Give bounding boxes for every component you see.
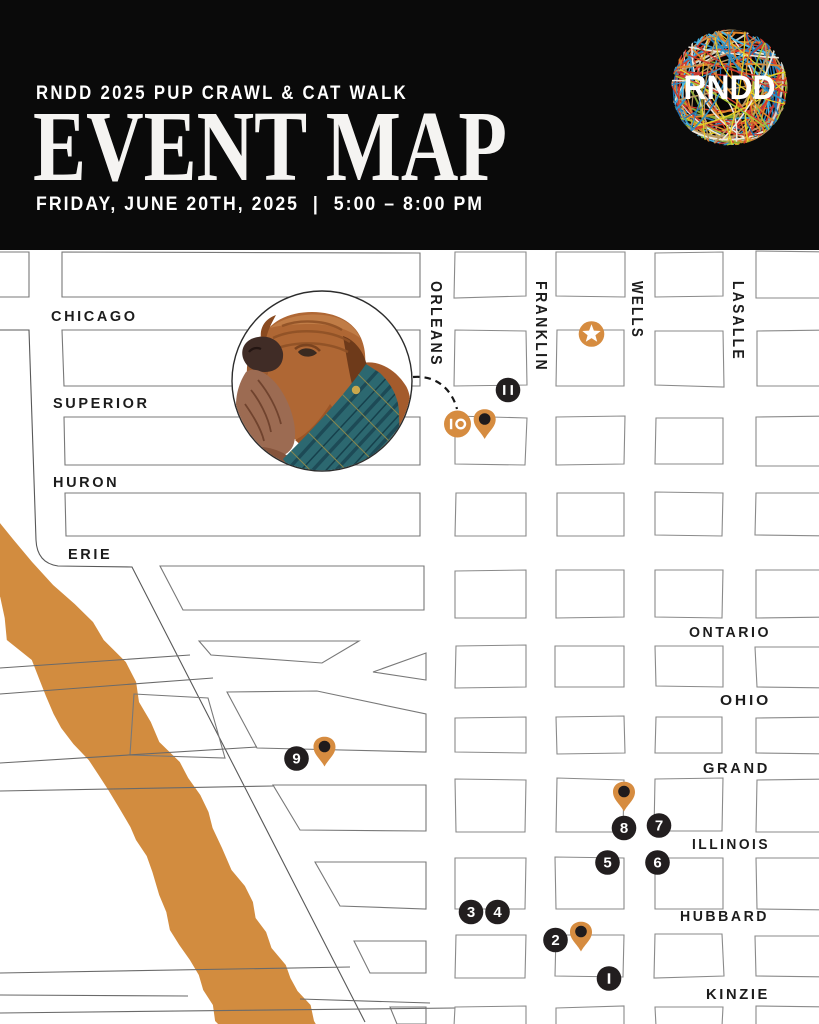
svg-text:ORLEANS: ORLEANS [427, 281, 444, 367]
svg-text:2: 2 [551, 932, 559, 949]
svg-text:9: 9 [292, 751, 300, 768]
svg-text:FRANKLIN: FRANKLIN [532, 281, 549, 372]
svg-text:4: 4 [493, 904, 502, 921]
svg-text:WELLS: WELLS [628, 281, 645, 339]
svg-text:LASALLE: LASALLE [729, 281, 746, 361]
svg-text:GRAND: GRAND [703, 761, 770, 777]
svg-text:HURON: HURON [53, 475, 119, 491]
svg-text:RNDD: RNDD [684, 69, 776, 107]
svg-text:CHICAGO: CHICAGO [51, 309, 138, 325]
svg-text:ERIE: ERIE [68, 547, 112, 563]
svg-text:HUBBARD: HUBBARD [680, 909, 769, 925]
svg-text:8: 8 [620, 820, 628, 837]
svg-text:FRIDAY, JUNE 20TH, 2025 | 5:: FRIDAY, JUNE 20TH, 2025 | 5:00 – 8:00 PM [36, 194, 484, 215]
svg-text:5: 5 [603, 855, 611, 872]
svg-text:ONTARIO: ONTARIO [689, 625, 771, 641]
svg-text:3: 3 [467, 904, 475, 921]
svg-text:KINZIE: KINZIE [706, 987, 770, 1003]
svg-text:SUPERIOR: SUPERIOR [53, 396, 150, 412]
svg-text:OHIO: OHIO [720, 693, 771, 709]
svg-text:7: 7 [655, 818, 663, 835]
svg-text:6: 6 [653, 855, 661, 872]
svg-text:ILLINOIS: ILLINOIS [692, 837, 770, 853]
svg-text:EVENT MAP: EVENT MAP [33, 90, 507, 202]
